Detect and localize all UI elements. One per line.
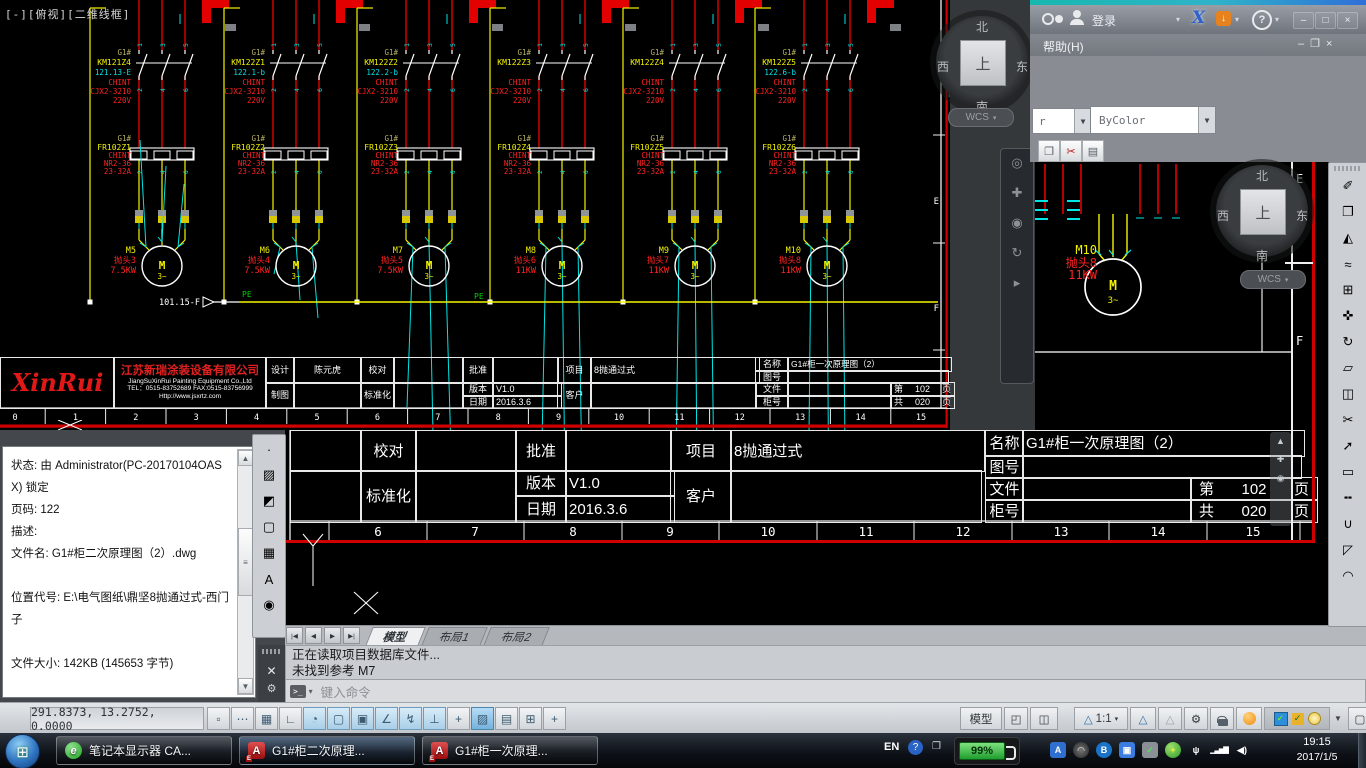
schematic-text: 11KW: [649, 266, 670, 276]
volume-icon[interactable]: ◀): [1234, 742, 1250, 758]
security-shield-icon[interactable]: A: [1050, 742, 1066, 758]
schematic-text: CHINT: [508, 78, 531, 87]
settings-gear-icon[interactable]: ⚙: [1184, 707, 1208, 730]
schematic-text: 6: [450, 170, 457, 174]
clock-date[interactable]: 2017/1/5: [1278, 751, 1356, 764]
schematic-text: 1: [403, 43, 411, 47]
break-button[interactable]: ╍: [1336, 486, 1360, 510]
main-tb-check_label: 校对: [360, 430, 417, 472]
status-toggle-otrack[interactable]: ∠: [375, 707, 398, 730]
schematic-text: 5: [316, 43, 324, 47]
file-info-tooltip: 状态: 由 Administrator(PC-20170104OASX) 锁定页…: [2, 446, 256, 698]
ime-restore-icon[interactable]: ❐: [932, 741, 941, 752]
taskbar-button[interactable]: e笔记本显示器 CA...: [56, 736, 232, 765]
main-tb-page-number: 102: [1241, 482, 1266, 497]
schematic-text: 3: [559, 43, 567, 47]
status-toggle-osnap-3d[interactable]: ▣: [351, 707, 374, 730]
tab-nav-0[interactable]: |◀: [286, 627, 303, 644]
schematic-text: G1#: [782, 48, 796, 57]
coordinates-readout[interactable]: 291.8373, 13.2752, 0.0000: [30, 707, 204, 730]
schematic-text: 6: [449, 88, 457, 92]
copy-button[interactable]: ❐: [1336, 200, 1360, 224]
clock-time[interactable]: 19:15: [1282, 736, 1352, 751]
power-plug-icon[interactable]: ψ: [1188, 742, 1204, 758]
tb-project-value: 8抛通过式: [590, 357, 760, 384]
tb-approve-label: 批准: [462, 357, 494, 384]
schematic-text: 5: [314, 413, 319, 423]
schematic-text: 4: [693, 170, 700, 174]
status-toggle-polar[interactable]: ◔: [303, 707, 326, 730]
front-cad-window: 122344566M3~M5抛头37.5KWG1#KM121Z4121.13-E…: [0, 0, 1035, 430]
schematic-text: CJX2-3210: [90, 87, 131, 96]
schematic-text: 4: [825, 170, 832, 174]
main-tb-version_label: 版本: [515, 470, 567, 497]
status-toggle-grid[interactable]: ▦: [255, 707, 278, 730]
autocad-badge: E: [429, 756, 435, 762]
schematic-text: 6: [715, 88, 723, 92]
main-titlebar[interactable]: 登录 ▾ X ↓ ▾ ? ▾ – □ ×: [1030, 5, 1366, 34]
task-buttons: e笔记本显示器 CA...AEG1#柜二次原理...AEG1#柜一次原理...: [56, 736, 598, 765]
browser-icon: e: [65, 742, 82, 759]
tb-design-label: 设计: [265, 357, 295, 384]
schematic-text: 121.13-E: [95, 68, 132, 77]
tab-label: 模型: [381, 629, 410, 645]
schematic-text: 3: [824, 43, 832, 47]
command-prompt-icon[interactable]: >_: [290, 685, 306, 698]
tb-cabinet-label: 柜号: [755, 395, 789, 409]
fillet-button[interactable]: ◠: [1336, 564, 1360, 588]
viewcube-east[interactable]: 东: [1292, 207, 1312, 224]
main-tb-file_value: [1022, 477, 1192, 501]
command-input[interactable]: >_ ▾ 键入命令: [285, 679, 1366, 703]
layout-tabs-row: |◀◀▶▶|模型布局1布局2: [285, 625, 1366, 646]
autoscale-icon[interactable]: △: [1158, 707, 1182, 730]
minimize-button[interactable]: –: [1293, 12, 1314, 29]
mdi-minimize-button[interactable]: –: [1298, 38, 1310, 50]
navigation-bar-collapsed[interactable]: ▲ ✚ ◉: [1270, 432, 1291, 526]
viewcube-north[interactable]: 北: [1252, 167, 1272, 184]
paste-button[interactable]: ▤: [1082, 140, 1104, 162]
schematic-text: G1#: [517, 48, 531, 57]
trim-button[interactable]: ✂: [1336, 408, 1360, 432]
quickview-layouts-icon[interactable]: ◫: [1030, 707, 1058, 730]
schematic-text: 122.6-b: [764, 68, 796, 77]
status-toggle-annotation-monitor[interactable]: +: [543, 707, 566, 730]
schematic-text: CJX2-3210: [623, 87, 664, 96]
status-toggle-plus[interactable]: +: [447, 707, 470, 730]
main-tb-client_value: [730, 470, 982, 523]
copy-properties-button[interactable]: ❐: [1038, 140, 1060, 162]
palette-settings-icon[interactable]: ⚙: [258, 680, 285, 698]
file-info-line: 文件大小: 142KB (145653 字节): [11, 653, 233, 675]
viewcube-north[interactable]: 北: [972, 18, 992, 35]
mirror-button[interactable]: ◭: [1336, 226, 1360, 250]
status-toggle-lineweight[interactable]: ⊥: [423, 707, 446, 730]
schematic-text: 4: [824, 88, 832, 92]
erase-button[interactable]: ✐: [1336, 174, 1360, 198]
schematic-text: 11KW: [516, 266, 537, 276]
wcs-dropdown[interactable]: WCS ▾: [1240, 270, 1306, 289]
main-tb-project_label: 项目: [670, 430, 732, 472]
schematic-text: 220V: [778, 96, 797, 105]
company-name-cn: 江苏新瑞涂装设备有限公司: [121, 366, 259, 378]
schematic-text: M: [159, 259, 166, 272]
table-button[interactable]: ▦: [257, 541, 281, 565]
tab-label: 布局2: [499, 629, 535, 645]
tb-draft-label: 制图: [265, 382, 295, 409]
tab-模型[interactable]: 模型: [365, 627, 426, 646]
navigation-bar[interactable]: ◎✚◉↻▸: [1000, 148, 1034, 384]
join-button[interactable]: ∪: [1336, 512, 1360, 536]
schematic-text: 3~: [1108, 296, 1119, 306]
scroll-thumb[interactable]: ≡: [238, 528, 253, 596]
mdi-restore-button[interactable]: ❐: [1310, 38, 1326, 50]
menu-help[interactable]: 帮助(H): [1043, 38, 1084, 55]
schematic-text: M10: [1075, 243, 1097, 257]
schematic-text: PE: [474, 292, 484, 301]
tb-total-suffix: 页: [942, 398, 951, 407]
status-toggle-ortho[interactable]: ∟: [279, 707, 302, 730]
main-tb-approve_label: 批准: [515, 430, 567, 472]
viewcube-west[interactable]: 西: [1213, 207, 1233, 224]
region-button[interactable]: ▢: [257, 515, 281, 539]
performance-icon[interactable]: [1236, 707, 1262, 730]
schematic-text: 10: [760, 524, 775, 539]
start-button[interactable]: ⊞: [5, 734, 40, 768]
schematic-text: 11KW: [781, 266, 802, 276]
schematic-text: G1#: [517, 134, 531, 143]
schematic-text: 4: [254, 413, 259, 423]
tb-client-label: 客户: [557, 382, 592, 409]
schematic-text: G1#: [251, 134, 265, 143]
chevron-down-icon[interactable]: ▾: [1235, 15, 1239, 24]
schematic-text: 9: [666, 524, 674, 539]
wcs-dropdown[interactable]: WCS ▾: [948, 108, 1014, 127]
schematic-text: 4: [426, 88, 434, 92]
signal-strength-icon[interactable]: ▁▃▅▇: [1211, 742, 1227, 758]
viewport-controls[interactable]: [-][俯视][二维线框]: [5, 6, 130, 22]
schematic-text: 9: [556, 413, 561, 423]
pan-icon[interactable]: ✚: [1277, 454, 1285, 465]
tray-settings-group[interactable]: ✓✓: [1264, 707, 1330, 730]
tab-布局1[interactable]: 布局1: [421, 627, 488, 646]
schematic-text: 6: [375, 413, 380, 423]
tb-date-value: 2016.3.6: [492, 395, 562, 409]
mdi-window-buttons[interactable]: –❐×: [1298, 37, 1338, 50]
status-toggle-transparency[interactable]: ▨: [471, 707, 494, 730]
array-button[interactable]: ⊞: [1336, 278, 1360, 302]
schematic-text: CHINT: [242, 78, 265, 87]
tb-approve-value: [492, 357, 559, 384]
schematic-text: 5: [847, 43, 855, 47]
chevron-down-icon: ▾: [1285, 276, 1289, 284]
main-tb-page-total: 共020页: [1190, 499, 1318, 523]
chevron-down-icon[interactable]: ▼: [1334, 714, 1342, 723]
schematic-text: 15: [1245, 524, 1260, 539]
command-history[interactable]: 正在读取项目数据库文件... 未找到参考 M7: [285, 645, 1366, 681]
main-tb-check_value: [415, 430, 517, 472]
annotation-visibility-icon[interactable]: △: [1130, 707, 1156, 730]
viewcube-south[interactable]: 南: [1252, 247, 1272, 264]
schematic-text: 4: [294, 170, 301, 174]
tb-check-value: [393, 357, 464, 384]
schematic-text: 11: [858, 524, 873, 539]
schematic-text: 2: [537, 170, 544, 174]
sync-ok-icon: ✓: [1292, 713, 1304, 725]
schematic-text: 2: [137, 170, 144, 174]
viewcube-main[interactable]: 北 南 西 东 上 WCS ▾: [1206, 152, 1318, 298]
viewcube-top-face[interactable]: 上: [1240, 189, 1286, 235]
schematic-text: 2: [670, 170, 677, 174]
schematic-text: 6: [582, 88, 590, 92]
schematic-text: 1: [270, 43, 278, 47]
add-selected-button[interactable]: ◉: [257, 593, 281, 617]
command-palette-bar[interactable]: ✕ ⚙: [258, 645, 286, 702]
status-toggle-grid-dots[interactable]: ⋯: [231, 707, 254, 730]
toolbar-grip[interactable]: [1334, 166, 1362, 171]
schematic-text: 8: [569, 524, 577, 539]
cut-button[interactable]: ✂: [1060, 140, 1082, 162]
schematic-text: 3: [293, 43, 301, 47]
main-tb-date_value: 2016.3.6: [565, 495, 675, 523]
main-tb-standard_label: 标准化: [360, 470, 417, 523]
schematic-text: 14: [855, 413, 865, 423]
annotation-scale-value: 1:1: [1096, 713, 1112, 725]
screen-capture-icon[interactable]: ▣: [1119, 742, 1135, 758]
main-tb-date_label: 日期: [515, 495, 567, 523]
schematic-text: G1#: [117, 48, 131, 57]
schematic-text: 抛头4: [248, 255, 270, 266]
main-tb-name_value: G1#柜一次原理图（2）: [1022, 430, 1305, 457]
chamfer-button[interactable]: ◸: [1336, 538, 1360, 562]
ime-help-icon[interactable]: ?: [908, 740, 923, 755]
main-menubar[interactable]: 帮助(H) –❐×: [1030, 34, 1366, 56]
safety-ball-icon[interactable]: +: [1165, 742, 1181, 758]
tab-nav-1[interactable]: ◀: [305, 627, 322, 644]
status-toggle-quick-properties[interactable]: ▤: [495, 707, 518, 730]
taskbar: ⊞ e笔记本显示器 CA...AEG1#柜二次原理...AEG1#柜一次原理..…: [0, 733, 1366, 768]
app-manager-icon[interactable]: ↓: [1216, 11, 1231, 26]
schematic-text: 3~: [557, 272, 567, 281]
rotate-button[interactable]: ↻: [1336, 330, 1360, 354]
toolbar-zone: r ▼ ByColor ▼ ❐ ✂ ▤: [1030, 56, 1366, 162]
exchange-apps-icon[interactable]: X: [1192, 8, 1205, 28]
chevron-down-icon[interactable]: ▾: [1176, 15, 1180, 24]
schematic-text: M: [293, 259, 300, 272]
clean-screen-button[interactable]: ▢: [1348, 707, 1366, 730]
circuit-column: 122344566M3~M5抛头37.5KWG1#KM121Z4121.13-E…: [0, 0, 236, 305]
zoom-icon[interactable]: ◉: [1277, 473, 1285, 484]
status-toggles: ▫⋯▦∟◔▢▣∠↯⊥+▨▤⊞+: [207, 707, 567, 730]
status-toggle-snap[interactable]: ▫: [207, 707, 230, 730]
user-icon[interactable]: [1070, 10, 1084, 24]
chevron-down-icon[interactable]: ▾: [1275, 15, 1279, 24]
main-title-block: 校对批准项目8抛通过式标准化版本V1.0日期2016.3.6客户名称G1#柜一次…: [285, 430, 1313, 521]
viewcube[interactable]: 北 南 西 东 上 WCS ▾: [928, 6, 1038, 132]
maximize-button[interactable]: □: [1315, 12, 1336, 29]
ac-plug-icon: [1006, 746, 1016, 760]
schematic-text: 3~: [291, 272, 301, 281]
schematic-text: 6: [716, 170, 723, 174]
palette-close-icon[interactable]: ✕: [258, 662, 285, 680]
schematic-text: CHINT: [773, 78, 796, 87]
file-info-line: 描述:: [11, 521, 233, 543]
schematic-text: 220V: [380, 96, 399, 105]
tb-page-total: 共020页: [890, 395, 955, 409]
schematic-text: 7: [471, 524, 479, 539]
break-at-point-button[interactable]: ▭: [1336, 460, 1360, 484]
schematic-text: M: [559, 259, 566, 272]
taskbar-button[interactable]: AEG1#柜二次原理...: [239, 736, 415, 765]
schematic-text: 5: [449, 43, 457, 47]
hatch-button[interactable]: ▨: [257, 463, 281, 487]
schematic-text: G1#: [251, 48, 265, 57]
schematic-text: 2: [270, 88, 278, 92]
full-navigation-wheel-icon[interactable]: ◎: [1011, 155, 1022, 171]
schematic-text: G1#: [650, 134, 664, 143]
main-tb-blank: [290, 430, 362, 472]
viewcube-west[interactable]: 西: [933, 58, 953, 75]
viewcube-east[interactable]: 东: [1012, 58, 1032, 75]
offset-button[interactable]: ≈: [1336, 252, 1360, 276]
autocad-icon: AE: [248, 742, 265, 759]
draw-toolbar: ·▨◩▢▦A◉: [252, 434, 286, 638]
schematic-text: 4: [559, 88, 567, 92]
taskbar-button[interactable]: AEG1#柜一次原理...: [422, 736, 598, 765]
schematic-text: 14: [1150, 524, 1165, 539]
main-tb-blank: [290, 470, 362, 523]
tb-page-suffix: 页: [942, 385, 951, 394]
status-toggle-osnap[interactable]: ▢: [327, 707, 350, 730]
schematic-text: 6: [182, 88, 190, 92]
battery-level: 99%: [959, 742, 1005, 760]
scroll-down-button[interactable]: ▼: [238, 678, 253, 694]
main-tb-approve_value: [565, 430, 672, 472]
tb-design-value: 陈元虎: [293, 357, 362, 384]
tab-nav-3[interactable]: ▶|: [343, 627, 360, 644]
schematic-text: 抛头6: [514, 255, 536, 266]
schematic-text: M9: [659, 246, 669, 256]
chevron-down-icon[interactable]: ▾: [309, 687, 313, 696]
schematic-text: 3: [194, 413, 199, 423]
system-tray: A◠B▣✓+ψ▁▃▅▇◀): [1050, 742, 1257, 758]
company-logo: XinRui: [0, 357, 115, 409]
main-tb-page-current: 第102页: [1190, 477, 1318, 501]
lock-body: [1218, 719, 1228, 726]
schematic-text: 抛头5: [381, 255, 403, 266]
tab-label: 布局1: [437, 629, 473, 645]
modify-toolbar: ✐❐◭≈⊞✜↻▱◫✂➚▭╍∪◸◠: [1328, 162, 1366, 627]
sign-in-button[interactable]: 登录: [1092, 12, 1116, 29]
scroll-up-button[interactable]: ▲: [238, 450, 253, 466]
schematic-text: 6: [183, 170, 190, 174]
schematic-text: 3~: [822, 272, 832, 281]
layer-dropdown-value: r: [1039, 115, 1046, 128]
network-swirl-icon[interactable]: ◠: [1073, 742, 1089, 758]
tb-draft-value: [293, 382, 362, 409]
layer-dropdown[interactable]: r ▼: [1032, 108, 1092, 134]
move-button[interactable]: ✜: [1336, 304, 1360, 328]
mdi-close-button[interactable]: ×: [1326, 38, 1338, 50]
bluetooth-icon[interactable]: B: [1096, 742, 1112, 758]
gradient-button[interactable]: ◩: [257, 489, 281, 513]
schematic-text: 7: [435, 413, 440, 423]
status-toggle-selection-cycling[interactable]: ⊞: [519, 707, 542, 730]
schematic-text: 4: [427, 170, 434, 174]
zoom-icon[interactable]: ◉: [1011, 215, 1022, 231]
extend-button[interactable]: ➚: [1336, 434, 1360, 458]
tb-project-label: 项目: [557, 357, 592, 384]
tb-total-prefix: 共: [894, 398, 903, 407]
scale-button[interactable]: ▱: [1336, 356, 1360, 380]
command-placeholder: 键入命令: [321, 682, 371, 701]
schematic-text: 2: [536, 88, 544, 92]
chevron-up-icon[interactable]: ▲: [1276, 436, 1285, 446]
model-space-button[interactable]: 模型: [960, 707, 1002, 730]
main-tb-standard_value: [415, 470, 517, 523]
schematic-text: 23-32A: [637, 167, 665, 176]
mtext-button[interactable]: A: [257, 567, 281, 591]
schematic-text: 2: [404, 170, 411, 174]
schematic-text: CHINT: [641, 78, 664, 87]
show-desktop-button[interactable]: [1358, 733, 1366, 768]
annotation-scale-icon: △: [1084, 712, 1093, 726]
schematic-text: G1#: [782, 134, 796, 143]
close-button[interactable]: ×: [1337, 12, 1358, 29]
language-indicator[interactable]: EN: [884, 741, 899, 753]
search-icon[interactable]: [1042, 13, 1054, 25]
usb-device-icon[interactable]: ✓: [1142, 742, 1158, 758]
main-tb-cabinet_value: [1022, 499, 1192, 523]
schematic-text: 3: [426, 43, 434, 47]
status-toggle-dynamic-input[interactable]: ↯: [399, 707, 422, 730]
palette-grip[interactable]: [262, 649, 281, 654]
schematic-text: KM122Z3: [497, 58, 531, 67]
tb-total-number: 020: [915, 398, 930, 407]
schematic-text: 6: [317, 170, 324, 174]
stretch-button[interactable]: ◫: [1336, 382, 1360, 406]
showmotion-icon[interactable]: ▸: [1014, 275, 1021, 291]
tb-client-value: [590, 382, 757, 409]
schematic-text: 3~: [157, 272, 167, 281]
viewcube-top-face[interactable]: 上: [960, 40, 1006, 86]
lock-icon[interactable]: [1210, 707, 1234, 730]
color-dropdown[interactable]: ByColor ▼: [1090, 106, 1216, 134]
main-tb-client_label: 客户: [670, 470, 732, 523]
battery-indicator[interactable]: 99%: [954, 737, 1020, 765]
schematic-text: KM122Z2: [364, 58, 398, 67]
schematic-text: 101.15-F: [159, 298, 200, 308]
schematic-text: 4: [692, 88, 700, 92]
tab-nav-2[interactable]: ▶: [324, 627, 341, 644]
color-dropdown-value: ByColor: [1099, 114, 1145, 127]
schematic-text: E: [934, 197, 939, 207]
schematic-text: KM121Z4: [97, 58, 131, 67]
orbit-icon[interactable]: ↻: [1012, 245, 1023, 261]
schematic-text: M: [824, 259, 831, 272]
schematic-text: 220V: [513, 96, 532, 105]
help-icon[interactable]: ?: [1252, 10, 1272, 30]
main-tb-version_value: V1.0: [565, 470, 675, 497]
point-button[interactable]: ·: [257, 437, 281, 461]
wcs-label: WCS: [966, 112, 989, 123]
pan-icon[interactable]: ✚: [1012, 185, 1023, 201]
tab-布局2[interactable]: 布局2: [484, 627, 551, 646]
schematic-text: 6: [847, 88, 855, 92]
annotation-scale-button[interactable]: △1:1▾: [1074, 707, 1128, 730]
performance-ball: [1243, 712, 1256, 725]
layout-icon[interactable]: ◰: [1004, 707, 1028, 730]
